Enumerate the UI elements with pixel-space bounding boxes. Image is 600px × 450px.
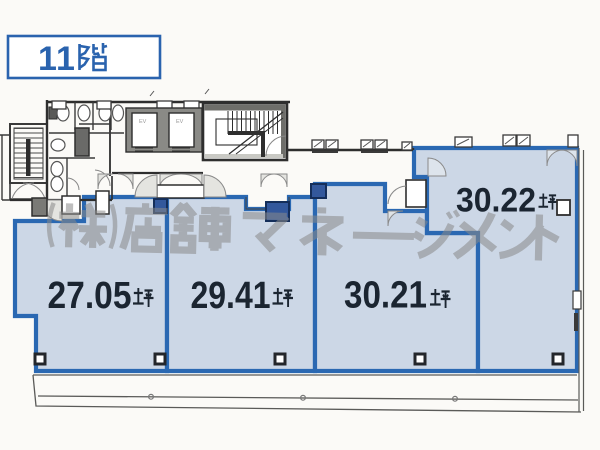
svg-text:30.22: 30.22: [456, 182, 536, 220]
svg-text:EV: EV: [176, 119, 184, 125]
svg-text:29.41: 29.41: [191, 275, 271, 317]
svg-text:EV: EV: [139, 119, 147, 125]
svg-text:30.21: 30.21: [344, 275, 427, 317]
svg-text:11: 11: [38, 40, 76, 78]
svg-text:27.05: 27.05: [48, 275, 132, 317]
